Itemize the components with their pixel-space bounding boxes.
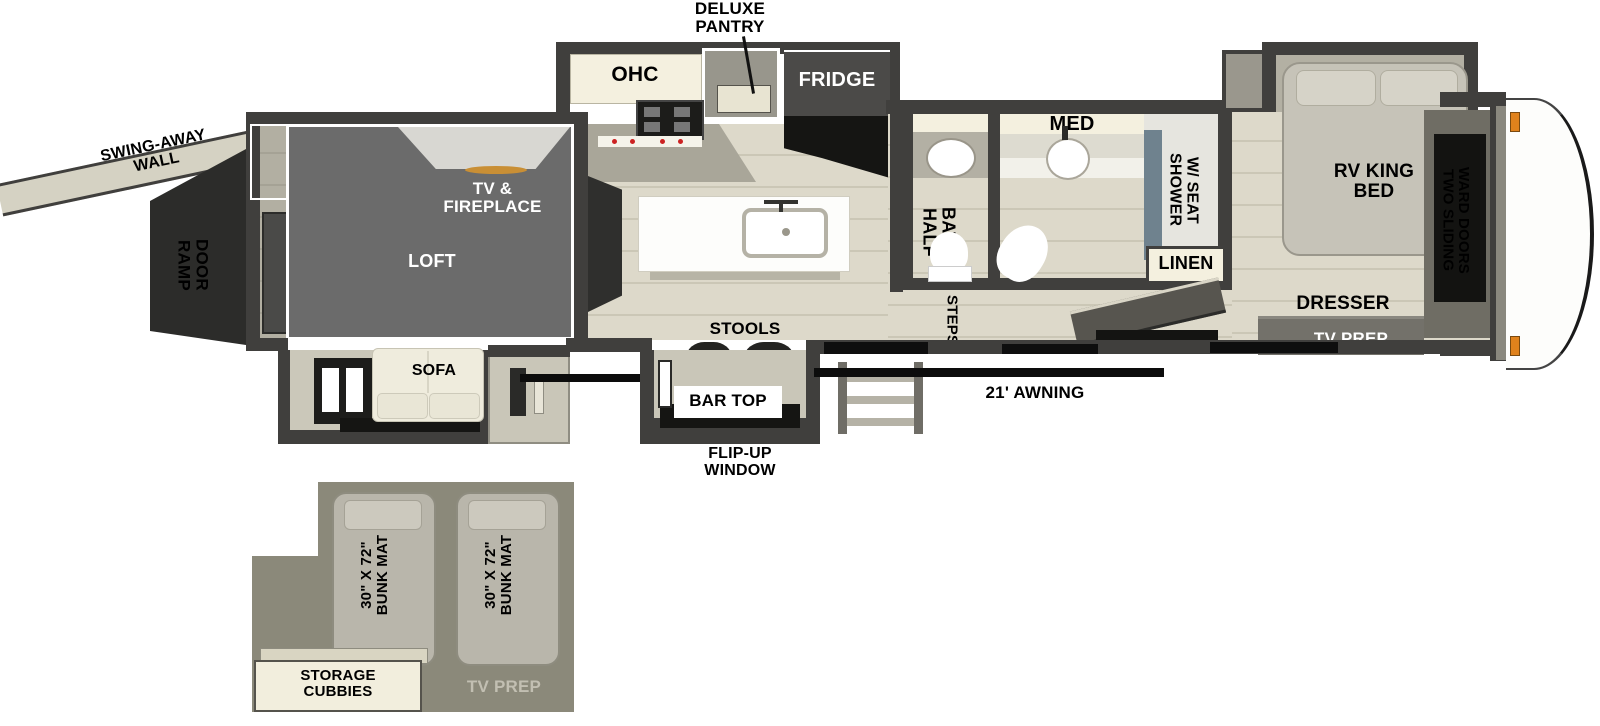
corner-bumpout-wall — [488, 345, 570, 357]
bottom-wall-garage — [246, 338, 288, 351]
bed-slide-left-wall — [1262, 42, 1276, 112]
marker-light-top — [1510, 112, 1520, 132]
inset-tv-prep-label: TV PREP — [448, 678, 560, 696]
sofa — [372, 348, 484, 422]
bath-exterior-window — [1002, 344, 1098, 354]
entry-door-window — [824, 342, 928, 354]
island-sink — [742, 208, 828, 258]
ward-doors-label: TWO SLIDING WARD DOORS — [1440, 142, 1482, 298]
dresser-label: DRESSER — [1288, 294, 1398, 314]
bunk-mat-1-label: 30" X 72" BUNK MAT — [359, 495, 405, 655]
range-front — [598, 136, 702, 147]
shower-label: SHOWER W/ SEAT — [1166, 128, 1216, 252]
bunk-mat-2-label: 30" X 72" BUNK MAT — [483, 495, 529, 655]
awning-label: 21' AWNING — [960, 384, 1110, 402]
cooktop — [636, 100, 704, 140]
front-cap — [1506, 98, 1594, 370]
sink-faucet-stem — [779, 200, 783, 212]
marker-light-bottom — [1510, 336, 1520, 356]
floorplan-diagram: SWING-AWAY WALL RAMP DOOR FOLD-UP STEPS … — [0, 0, 1600, 726]
garage-kitchen-wall — [574, 112, 588, 350]
kitchen-slide-left-wall — [556, 42, 570, 122]
rv-king-bed-label: RV KING BED — [1316, 162, 1432, 202]
bottom-wall-mid — [566, 338, 652, 352]
bath-sink — [1046, 138, 1090, 180]
bedroom-top-stub — [1440, 92, 1506, 107]
kitchen-bath-wall — [890, 112, 903, 292]
sofa-slide-window — [314, 358, 372, 424]
halfbath-sink — [926, 138, 976, 178]
garage-top-wall — [246, 112, 578, 124]
bar-window-slit — [658, 360, 672, 408]
corner-bumpout — [488, 350, 570, 444]
awning-line-short — [520, 374, 648, 382]
stools-label: STOOLS — [690, 320, 800, 338]
ohc-label: OHC — [595, 64, 675, 86]
tv-unit-back — [588, 176, 622, 312]
bed-pillow-1 — [1296, 70, 1376, 106]
storage-cubbies-label: STORAGE CUBBIES — [256, 668, 420, 699]
loft-label: LOFT — [392, 252, 472, 271]
halfbath-ohc — [913, 114, 988, 132]
linen-label: LINEN — [1148, 254, 1224, 273]
bath-top-wall — [886, 100, 1232, 114]
bath-faucet — [1062, 126, 1068, 140]
tv-fireplace-label: TV & FIREPLACE — [420, 180, 565, 215]
awning-line — [814, 368, 1164, 377]
bed-slide-top-wall — [1262, 42, 1478, 55]
bedroom-exterior-window — [1210, 342, 1338, 353]
deluxe-pantry-label: DELUXE PANTRY — [660, 0, 800, 35]
ramp-door-label: RAMP DOOR — [175, 210, 210, 320]
fireplace-glow — [465, 166, 527, 174]
med-label: MED — [1036, 114, 1108, 135]
halfbath-left-wall — [903, 112, 913, 290]
sofa-label: SOFA — [398, 363, 470, 380]
shower-glass — [1144, 130, 1162, 260]
flip-up-window-label: FLIP-UP WINDOW — [660, 446, 820, 479]
bar-top-label: BAR TOP — [676, 392, 780, 410]
halfbath-toilet-tank — [928, 266, 972, 282]
fridge-label: FRIDGE — [792, 70, 882, 91]
deluxe-pantry — [702, 48, 780, 120]
